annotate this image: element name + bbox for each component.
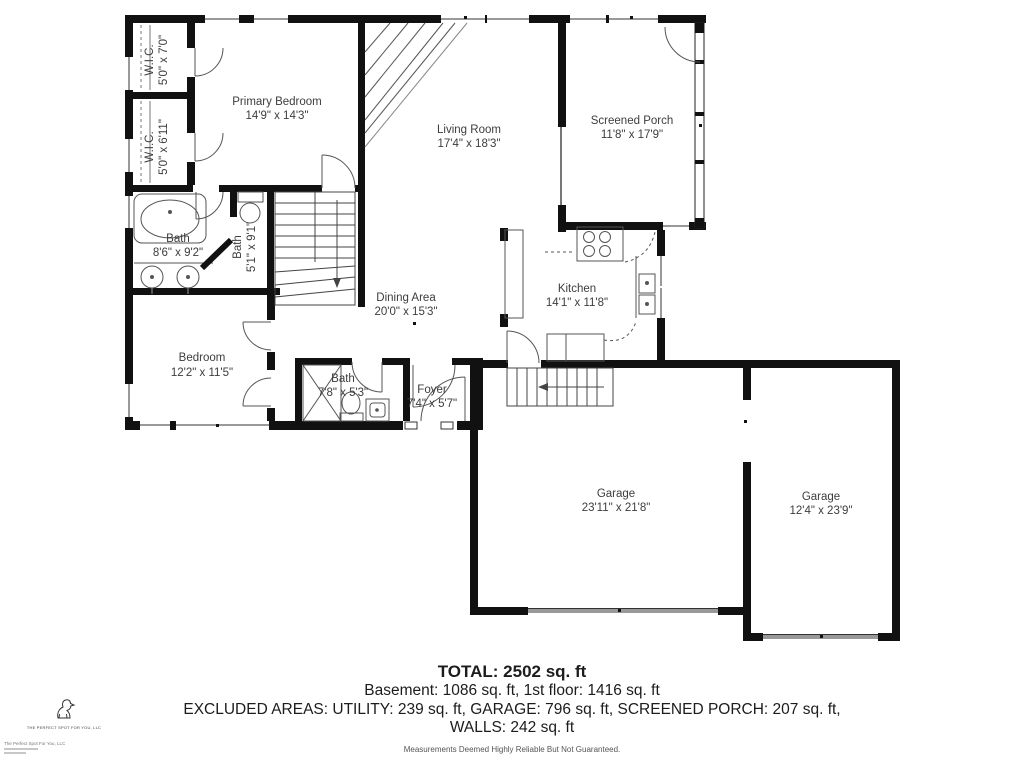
dims-garage2: 12'4" x 23'9" <box>789 505 852 517</box>
fine-print-bar <box>4 748 38 750</box>
area-summary: TOTAL: 2502 sq. ft Basement: 1086 sq. ft… <box>0 662 1024 754</box>
label-dining-area: Dining Area <box>376 292 436 304</box>
dims-dining-area: 20'0" x 15'3" <box>374 306 437 318</box>
dims-foyer: 7'4" x 5'7" <box>407 398 457 410</box>
dimension-ticks <box>126 16 896 638</box>
excluded-areas-text: EXCLUDED AREAS: UTILITY: 239 sq. ft, GAR… <box>0 701 1024 720</box>
label-kitchen: Kitchen <box>558 283 596 295</box>
company-logo: THE PERFECT SPOT FOR YOU, LLC <box>26 696 102 730</box>
hall-bath-fixtures <box>238 192 263 223</box>
floors-area-text: Basement: 1086 sq. ft, 1st floor: 1416 s… <box>0 682 1024 701</box>
label-garage1: Garage <box>597 488 635 500</box>
dims-bedroom: 12'2" x 11'5" <box>171 367 233 379</box>
dims-kitchen: 14'1" x 11'8" <box>546 297 608 309</box>
fine-print-bar <box>4 752 26 754</box>
company-name: THE PERFECT SPOT FOR YOU, LLC <box>26 725 102 730</box>
floor-plan-drawing: W.I.C. 5'0" x 7'0" W.I.C. 5'0" x 6'11" P… <box>0 0 1024 660</box>
dims-hall-bath: 5'1" x 9'1" <box>246 222 258 272</box>
label-bedroom: Bedroom <box>179 352 226 364</box>
dims-living-room: 17'4" x 18'3" <box>437 138 500 150</box>
fine-print-line: The Perfect Spot For You, LLC <box>4 741 65 746</box>
label-wic1: W.I.C. <box>144 44 156 75</box>
label-wic2: W.I.C. <box>144 131 156 162</box>
basement-staircase <box>507 368 613 406</box>
floor-plan-page: W.I.C. 5'0" x 7'0" W.I.C. 5'0" x 6'11" P… <box>0 0 1024 768</box>
label-living-room: Living Room <box>437 124 501 136</box>
dims-garage1: 23'11" x 21'8" <box>582 502 651 514</box>
disclaimer-text: Measurements Deemed Highly Reliable But … <box>0 745 1024 754</box>
dims-primary-bath: 8'6" x 9'2" <box>153 247 203 259</box>
total-area-text: TOTAL: 2502 sq. ft <box>0 662 1024 682</box>
garage-doors <box>528 608 878 639</box>
dims-wic1: 5'0" x 7'0" <box>158 35 170 85</box>
walls-area-text: WALLS: 242 sq. ft <box>0 719 1024 738</box>
label-garage2: Garage <box>802 491 840 503</box>
dims-bath3: 7'8" x 5'3" <box>318 387 368 399</box>
label-foyer: Foyer <box>417 384 447 396</box>
label-primary-bedroom: Primary Bedroom <box>232 96 321 108</box>
dims-wic2: 5'0" x 6'11" <box>158 119 170 175</box>
label-hall-bath: Bath <box>232 235 244 259</box>
label-screened-porch: Screened Porch <box>591 115 673 127</box>
walls <box>125 15 900 641</box>
dims-screened-porch: 11'8" x 17'9" <box>601 129 663 141</box>
main-staircase <box>275 192 355 305</box>
dims-primary-bedroom: 14'9" x 14'3" <box>245 110 308 122</box>
label-bath3: Bath <box>331 373 355 385</box>
label-primary-bath: Bath <box>166 233 190 245</box>
fine-print: The Perfect Spot For You, LLC <box>4 741 65 754</box>
door-openings <box>140 48 878 641</box>
dog-icon <box>49 696 79 720</box>
